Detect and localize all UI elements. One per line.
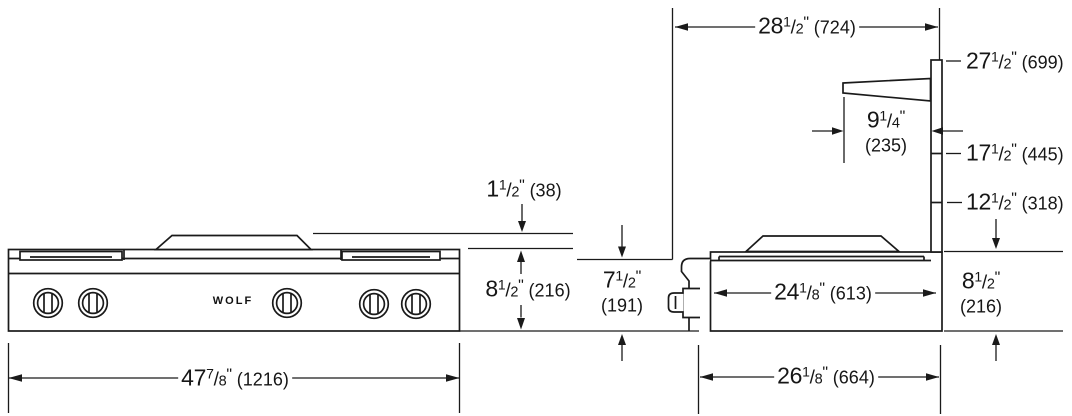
- control-knob-4: [360, 290, 389, 319]
- riser: [931, 60, 942, 252]
- dim-grate-above-counter: 11/2"(38): [483, 178, 564, 201]
- brand-logo: WOLF: [213, 295, 253, 307]
- dim-riser-mid-height: 171/2"(445): [963, 142, 1067, 165]
- dim-side-height: 81/2" (216): [957, 269, 1005, 318]
- front-right-grate: [342, 252, 440, 261]
- dim-riser-low-height: 121/2"(318): [963, 191, 1067, 214]
- dim-grate-height-graphics: [313, 204, 573, 249]
- line-art: [0, 0, 1072, 416]
- dim-overall-depth: 261/8"(664): [774, 365, 878, 388]
- dim-overall-height: 81/2"(216): [482, 278, 573, 301]
- front-body: [9, 250, 460, 332]
- front-griddle: [156, 236, 311, 250]
- control-knob-1: [34, 289, 63, 318]
- control-knob-5: [402, 290, 431, 319]
- spec-drawing: WOLF 281/2"(724) 271/2"(699) 91/4" (235)…: [0, 0, 1072, 416]
- dim-riser-top-height: 271/2"(699): [963, 50, 1067, 73]
- dim-below-counter-depth: 71/2" (191): [598, 268, 646, 317]
- dim-back-width: 281/2"(724): [755, 15, 859, 38]
- dim-shelf-depth: 91/4" (235): [862, 108, 910, 157]
- control-knob-3: [273, 289, 302, 318]
- side-knob-bezel: [683, 289, 700, 318]
- front-view: [9, 236, 460, 332]
- dim-overall-width: 477/8"(1216): [178, 367, 292, 390]
- dim-body-depth: 241/8"(613): [771, 281, 875, 304]
- dimension-lines: [9, 8, 1064, 414]
- front-left-grate: [20, 252, 122, 261]
- high-shelf: [843, 79, 931, 102]
- control-knob-2: [79, 289, 108, 318]
- side-grate: [746, 236, 899, 252]
